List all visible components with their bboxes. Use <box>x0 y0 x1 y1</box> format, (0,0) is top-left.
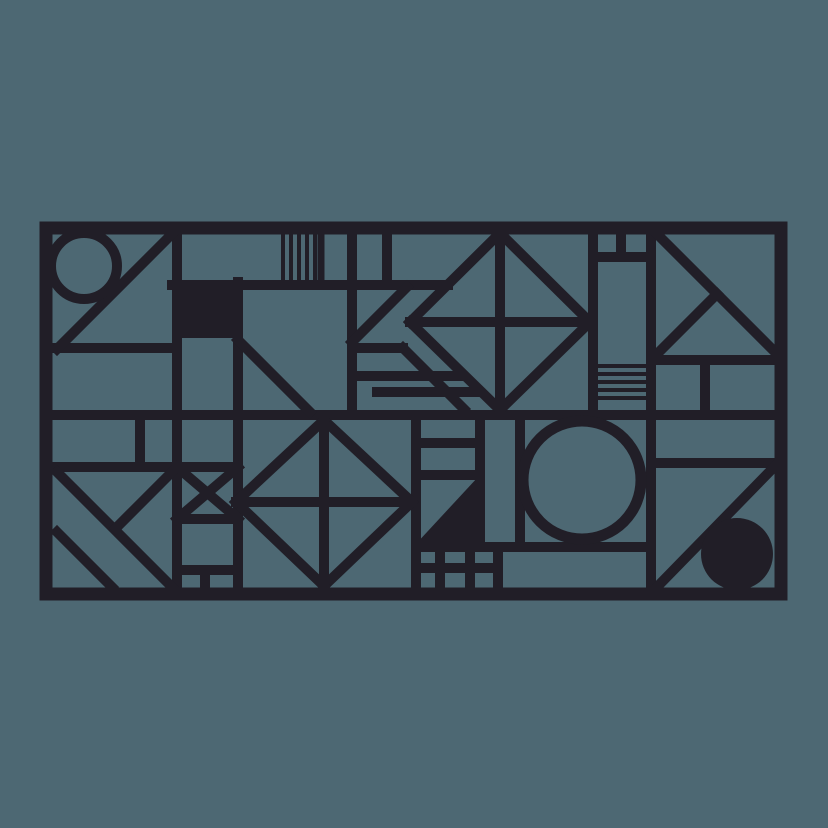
filled-circle <box>701 518 773 590</box>
geometric-art-stage <box>0 0 828 828</box>
filled-square <box>172 280 243 338</box>
geometric-art-panel <box>0 0 828 828</box>
